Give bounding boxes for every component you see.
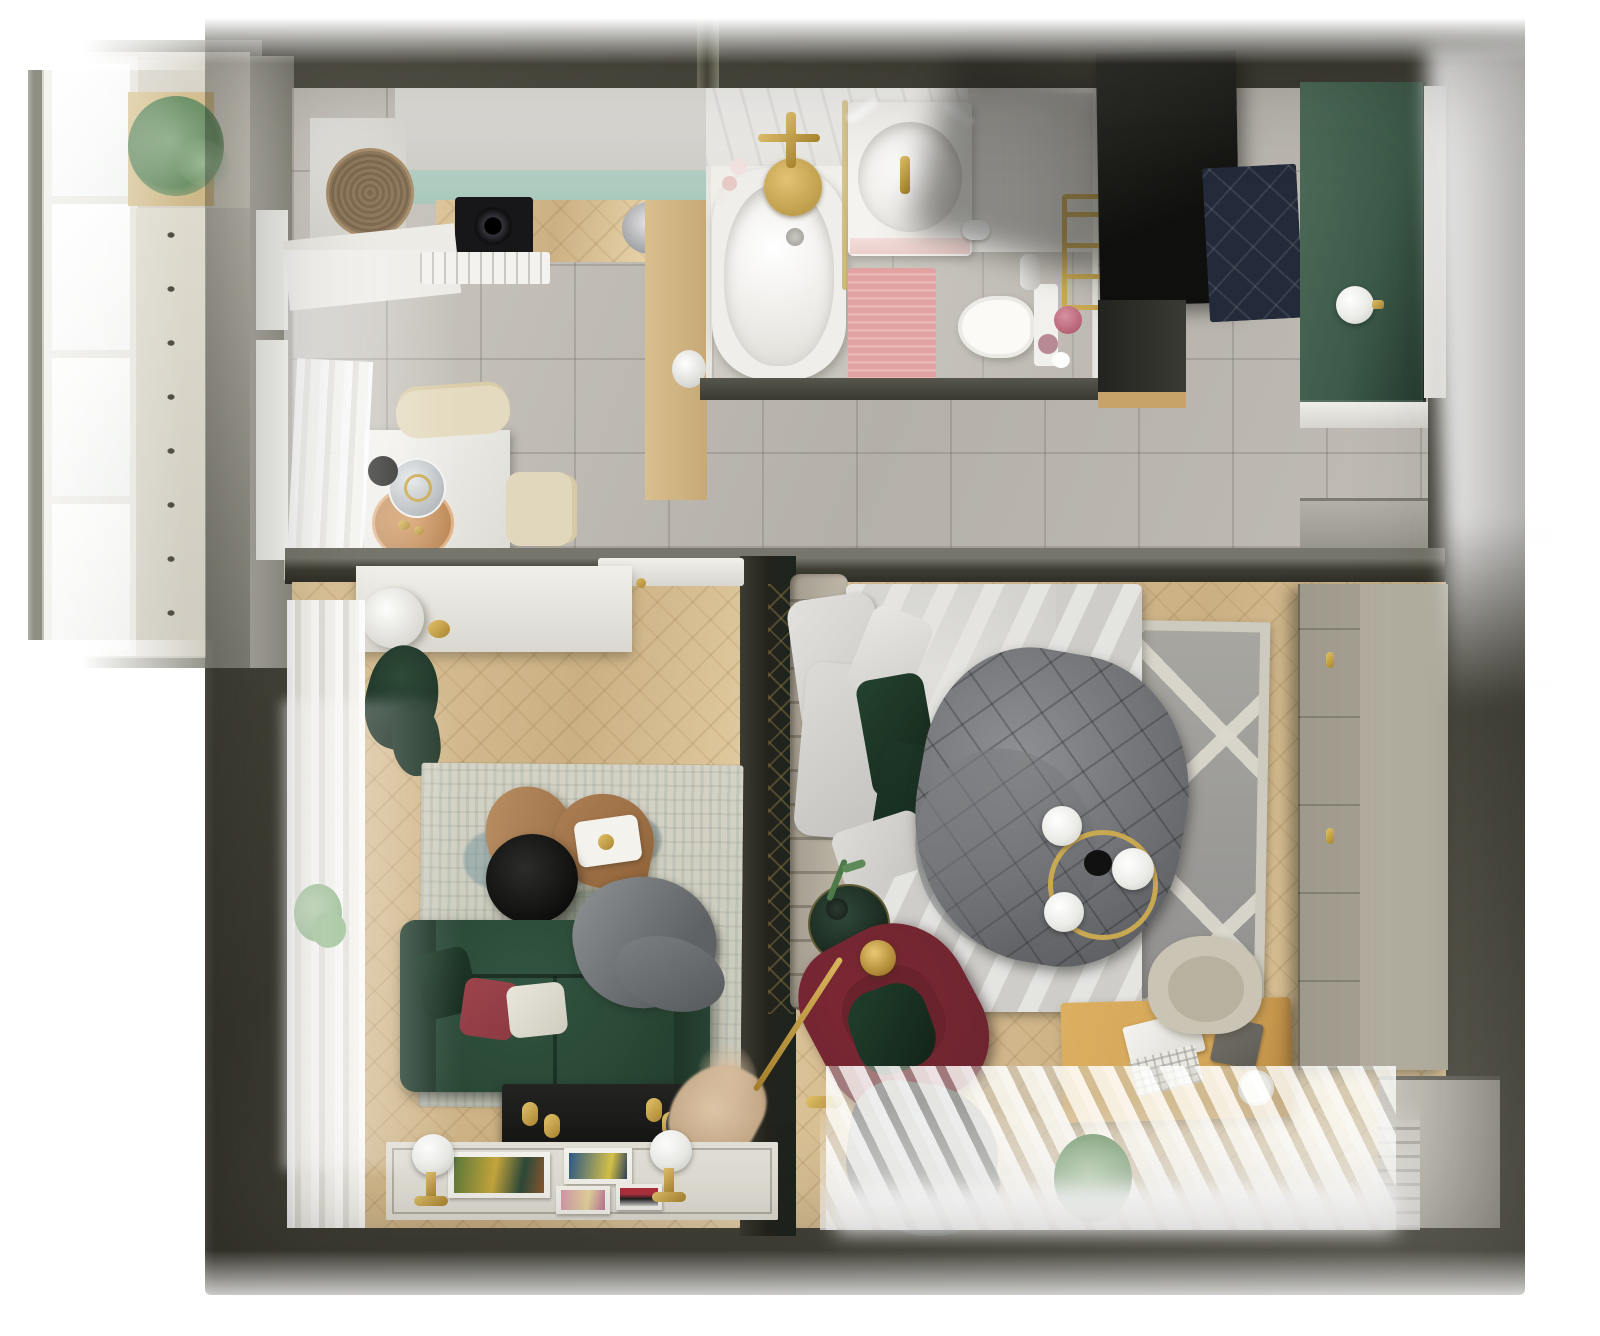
apartment-render	[0, 0, 1600, 1336]
window-pane	[52, 64, 130, 196]
window-pane	[52, 504, 130, 650]
plant-shelf	[128, 92, 214, 206]
fade-left-bottom	[0, 640, 215, 1336]
fade-left-edge	[0, 0, 34, 1336]
balcony-tile-strip	[136, 208, 206, 656]
fade-right	[1528, 0, 1600, 1336]
balcony-window	[44, 56, 138, 656]
window-pane	[52, 204, 130, 350]
fade-left-top	[0, 0, 210, 70]
mid-wall	[285, 548, 1445, 584]
window-pane	[52, 358, 130, 496]
window-wall-glass	[256, 210, 288, 330]
outer-walls	[205, 12, 1525, 1295]
service-pipe	[697, 0, 719, 94]
divider-brass-trellis	[768, 584, 794, 1014]
window-wall-glass	[256, 340, 288, 560]
